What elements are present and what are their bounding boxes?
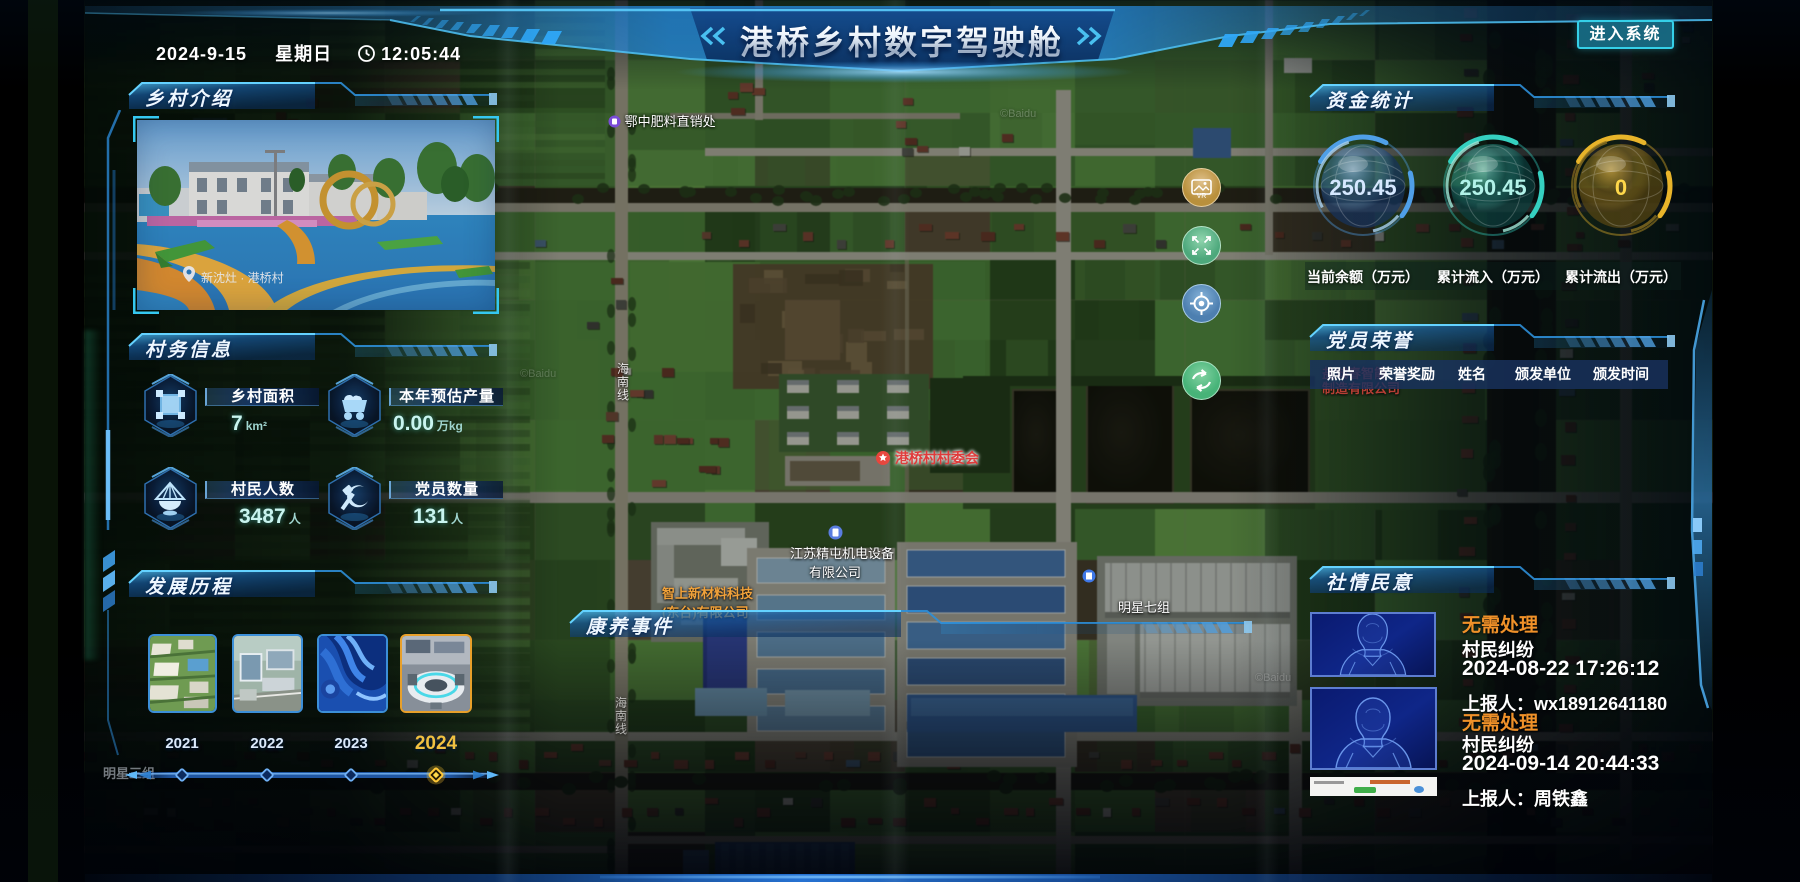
svg-text:VR: VR [1197,193,1207,200]
svg-text:0: 0 [1615,175,1627,200]
svg-text:250.45: 250.45 [1459,175,1526,200]
svg-text:250.45: 250.45 [1329,175,1396,200]
